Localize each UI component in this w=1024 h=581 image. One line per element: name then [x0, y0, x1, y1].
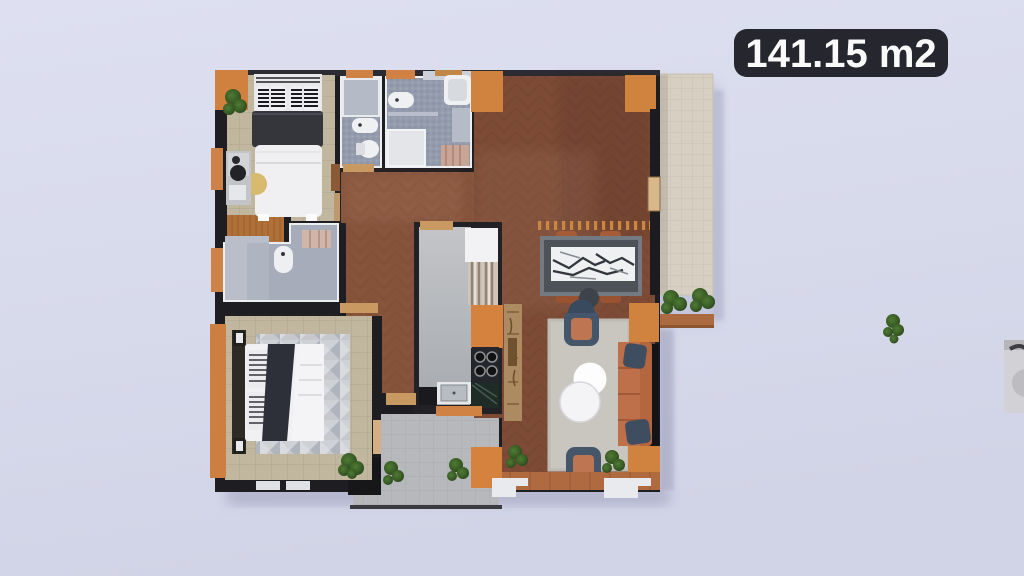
svg-text:141.15 m2: 141.15 m2 [745, 32, 936, 76]
